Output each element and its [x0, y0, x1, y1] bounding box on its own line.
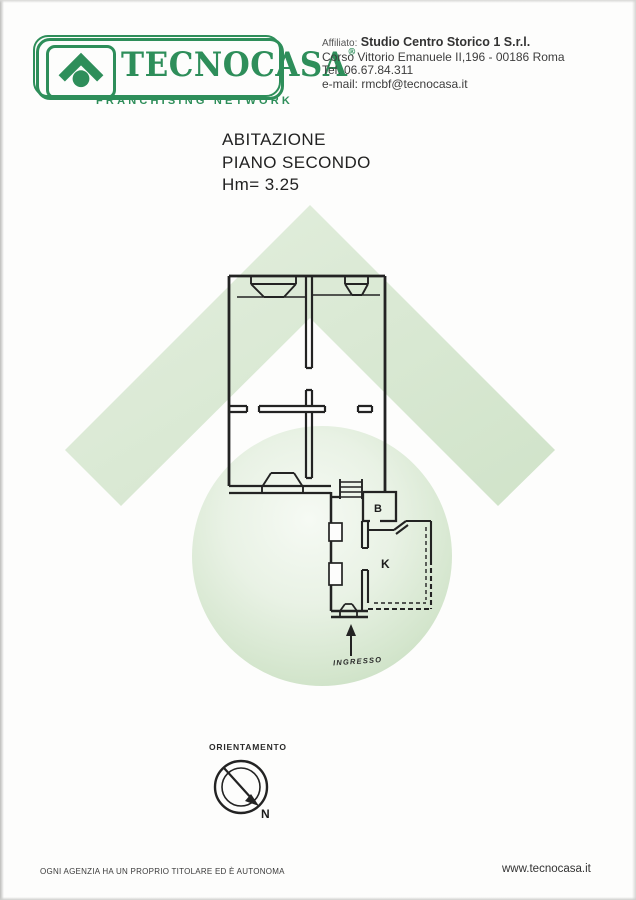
- affiliate-phone: Tel. 06.67.84.311: [322, 64, 622, 78]
- affiliate-email: e-mail: rmcbf@tecnocasa.it: [322, 78, 622, 92]
- affiliate-block: Affiliato: Studio Centro Storico 1 S.r.l…: [322, 36, 622, 91]
- scanned-floorplan-page: B K INGRESSO ORIENTAMENTO N TECNOCASA® F…: [0, 0, 636, 900]
- plan-title: ABITAZIONE PIANO SECONDO Hm= 3.25: [222, 129, 371, 197]
- affiliate-label: Affiliato:: [322, 38, 357, 49]
- affiliate-name: Studio Centro Storico 1 S.r.l.: [361, 35, 530, 49]
- title-line-2: PIANO SECONDO: [222, 152, 371, 175]
- tecnocasa-logo: TECNOCASA®: [36, 38, 284, 100]
- footer-disclaimer: OGNI AGENZIA HA UN PROPRIO TITOLARE ED È…: [40, 867, 285, 876]
- footer-website: www.tecnocasa.it: [502, 863, 591, 875]
- compass-icon: [215, 761, 267, 813]
- room-label-b: B: [374, 503, 382, 515]
- affiliate-name-line: Affiliato: Studio Centro Storico 1 S.r.l…: [322, 36, 622, 51]
- franchising-tagline: FRANCHISING NETWORK: [96, 95, 293, 107]
- house-icon: [46, 45, 116, 99]
- title-line-1: ABITAZIONE: [222, 129, 371, 152]
- affiliate-address: Corso Vittorio Emanuele II,196 - 00186 R…: [322, 51, 622, 65]
- compass-north-label: N: [261, 807, 270, 821]
- compass-label: ORIENTAMENTO: [209, 742, 287, 752]
- title-line-3: Hm= 3.25: [222, 174, 371, 197]
- room-label-k: K: [381, 557, 390, 571]
- brand-text: TECNOCASA: [121, 46, 347, 85]
